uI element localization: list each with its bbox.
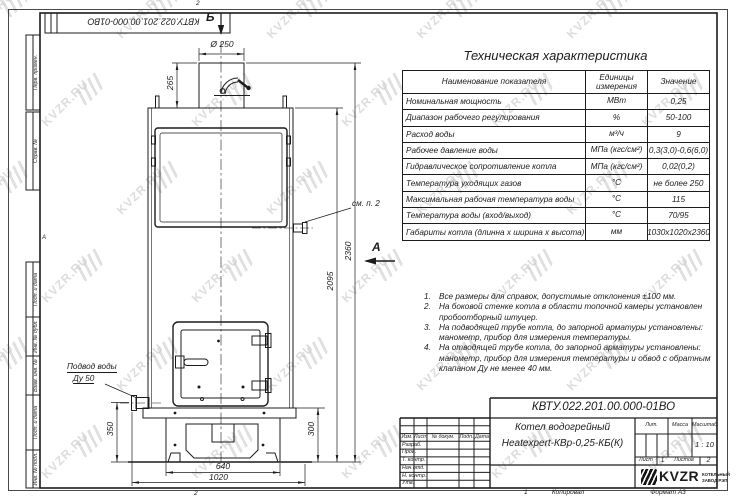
zone-mark-top: 2 [196, 1, 200, 8]
product-name-line2: Heatexpert-КВр-0,25-КБ(К) [490, 439, 635, 450]
row-tkontr: Т. контр. [402, 458, 425, 464]
see-note-callout: см. п. 2 [352, 200, 380, 209]
margin-label-inv-podl: Инв. № подл. [34, 450, 40, 488]
product-name-line1: Котел водогрейный [490, 423, 635, 434]
mass-label: Масса [668, 423, 692, 429]
margin-label-podp-data-2: Подп. и дата [34, 395, 40, 450]
dim-2095: 2095 [326, 260, 335, 302]
zone-mark-left: А [42, 235, 46, 241]
doc-number: КВТУ.022.201.00.000-01ВО [490, 401, 717, 413]
boiler-front-view [105, 42, 351, 470]
dim-300: 300 [307, 412, 316, 446]
bottom-zone-num: 1 [524, 490, 528, 497]
table-row: Рабочее давление водыМПа (кгс/см²)0,3(3,… [403, 142, 709, 158]
table-row: Максимальная рабочая температура воды°С1… [403, 191, 709, 207]
tech-table-header-row: Наименование показателя Единицы измерени… [403, 71, 709, 93]
margin-label-podp-data-1: Подп. и дата [34, 262, 40, 317]
sheet-value: 1 [657, 457, 668, 464]
view-a-arrow [364, 258, 395, 265]
sheets-label: Листов [668, 458, 700, 464]
damper-lever [214, 78, 251, 96]
table-row: Расход водым³/ч9 [403, 126, 709, 142]
row-prov: Пров. [402, 450, 416, 456]
table-row: Температура воды (вход/выход)°С70/95 [403, 207, 709, 223]
notes-list: 1.Все размеры для справок, допустимые от… [424, 292, 714, 374]
col-podp: Подп. [459, 435, 474, 440]
col-izm: Изм. [400, 435, 414, 440]
sheet-label: Лист [635, 458, 657, 464]
tech-table-header-name: Наименование показателя [403, 71, 586, 93]
col-dokum: № докум. [427, 435, 459, 440]
row-razrab: Разраб. [402, 443, 422, 449]
col-data: Дата [474, 435, 490, 440]
dim-1020: 1020 [132, 473, 305, 482]
list-item: 2.На боковой стенке котла в области топо… [424, 302, 714, 323]
furnace-door [173, 322, 271, 406]
water-inlet-label-1: Подвод воды [67, 363, 117, 373]
copied-label: Копировал [536, 490, 600, 497]
margin-label-sprav: Справ. № [34, 112, 40, 190]
sampling-fitting [252, 208, 351, 234]
row-nkontr: Н. контр. [402, 474, 426, 480]
view-b-label: Б [206, 11, 215, 24]
scale-label: Масштаб [692, 423, 717, 429]
table-row: Номинальная мощностьМВт0,25 [403, 93, 709, 109]
boiler-body [148, 108, 293, 408]
list-item: 3.На подводящей трубе котла, до запорной… [424, 323, 714, 344]
water-inlet [105, 384, 162, 411]
dim-d250: Ø 250 [197, 40, 247, 49]
chimney [199, 63, 244, 108]
dim-640: 640 [166, 462, 280, 471]
kvzr-logo-icon [641, 469, 657, 485]
margin-label-vzam-inv: Взам. инв. № [34, 356, 40, 395]
zone-mark-bottom: 2 [194, 491, 198, 498]
table-row: Гидравлическое сопротивление котлаМПа (к… [403, 158, 709, 174]
kvzr-tagline-1: КОТЕЛЬНЫЙ [702, 472, 730, 477]
table-row: Диапазон рабочего регулирования%50-100 [403, 109, 709, 125]
view-a-label: А [372, 241, 381, 254]
margin-label-inv-dubl: Инв. № дубл. [34, 317, 40, 356]
dim-350: 350 [106, 412, 115, 446]
table-row: Габариты котла (длинна х ширина х высота… [403, 223, 709, 239]
row-utv: Утв. [402, 481, 414, 487]
kvzr-logo-text: KVZR [659, 469, 699, 484]
boiler-base [143, 408, 296, 462]
tech-table-header-units: Единицы измерения [586, 71, 648, 93]
list-item: 4.На отводящей трубе котла, до запорной … [424, 343, 714, 374]
dim-2360: 2360 [344, 230, 353, 272]
water-inlet-label-2: Ду 50 [73, 375, 94, 385]
dim-265: 265 [166, 66, 175, 100]
tech-table-title: Техническая характеристика [402, 49, 709, 63]
top-stamp-number: КВТУ.022.201.00.000-01ВО [57, 16, 230, 25]
list-item: 1.Все размеры для справок, допустимые от… [424, 292, 714, 302]
tech-table: Наименование показателя Единицы измерени… [402, 70, 710, 241]
format-label: Формат А3 [630, 490, 706, 497]
drawing-sheet: KVZR.RUKVZR.RUKVZR.RUKVZR.RUKVZR.RUKVZR.… [0, 0, 750, 500]
scale-value: 1 : 10 [692, 441, 717, 449]
sheets-value: 2 [700, 457, 717, 464]
row-nachotd: Нач.отд. [402, 466, 425, 472]
col-list: Лист [414, 435, 427, 440]
tech-table-header-value: Значение [648, 71, 709, 93]
margin-label-perv-primen: Перв. примен. [34, 35, 40, 110]
lit-label: Лит. [635, 423, 668, 429]
table-row: Температура уходящих газов°Сне более 250 [403, 174, 709, 190]
kvzr-tagline-2: ЗАВОД РЭП [702, 478, 727, 483]
